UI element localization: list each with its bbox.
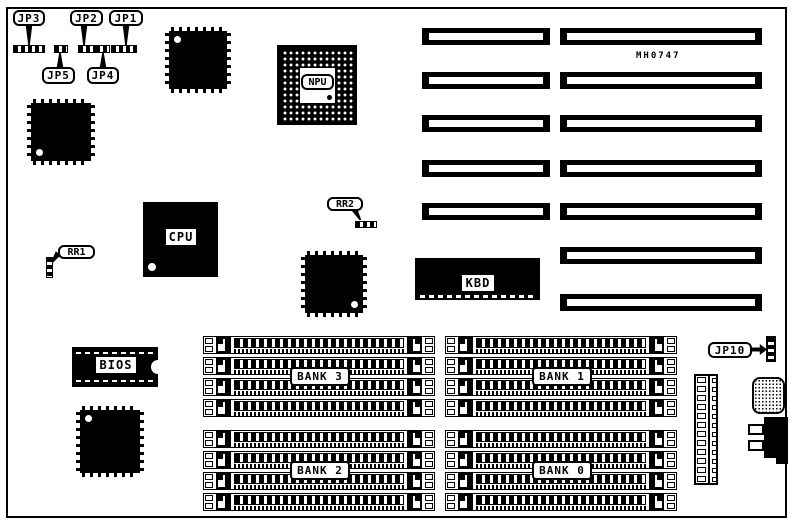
isa-slot-slit [429, 120, 543, 127]
qfp-pin1-dot [351, 301, 358, 308]
simm-latch-left [216, 473, 231, 489]
simm-contact-strip [234, 495, 404, 505]
simm-end-cell [447, 461, 455, 467]
qfp-pins-right [363, 257, 367, 311]
simm-end-cell [205, 482, 213, 488]
simm-end-cell [205, 359, 213, 365]
simm-end-cell [667, 432, 675, 438]
cpu-chip-label: CPU [166, 229, 196, 245]
power-pin [697, 476, 706, 482]
isa-slot-slit [567, 120, 755, 127]
simm-end-cell [205, 495, 213, 501]
bank-label-0: BANK 3 [290, 367, 350, 386]
simm-end-cell [425, 380, 433, 386]
power-pin-small [712, 378, 717, 383]
simm-end-cell [447, 388, 455, 394]
power-pin-small [712, 459, 717, 464]
simm-pin-ticks [476, 443, 646, 447]
simm-end-cell [425, 367, 433, 373]
simm-end-cell [447, 453, 455, 459]
simm-pin-ticks [476, 412, 646, 416]
power-pin-small [712, 450, 717, 455]
qfp-pins-right [227, 33, 231, 87]
power-pin-small [712, 387, 717, 392]
qfp-pin1-dot [85, 415, 92, 422]
power-pin-small [712, 432, 717, 437]
simm-contact-strip [476, 338, 646, 348]
simm-end-cell [205, 453, 213, 459]
simm-latch-right [649, 452, 664, 468]
isa-slot-col0-row0 [422, 28, 550, 45]
qfp-pin1-dot [36, 149, 43, 156]
bios-pin-row-bottom [76, 380, 154, 382]
isa-slot-slit [567, 33, 755, 40]
isa-slot-col0-row4 [422, 203, 550, 220]
power-pin [697, 431, 706, 437]
simm-latch-left [216, 494, 231, 510]
bank-label-1: BANK 1 [532, 367, 592, 386]
simm-end-cell [667, 367, 675, 373]
jumper-block-jp3 [13, 45, 45, 53]
simm-latch-right [407, 337, 422, 353]
simm-end-cell [205, 401, 213, 407]
simm-contact-strip [476, 401, 646, 411]
din-connector [764, 417, 788, 458]
simm-end-cell [425, 409, 433, 415]
isa-slot-col1-row3 [560, 160, 762, 177]
simm-pin-ticks [234, 349, 404, 353]
simm-latch-right [649, 400, 664, 416]
simm-latch-left [216, 379, 231, 395]
jumper-label-jp3: JP3 [13, 10, 45, 26]
din-connector-base [776, 456, 788, 464]
simm-end-cell [667, 380, 675, 386]
simm-contact-strip [234, 432, 404, 442]
simm-latch-right [649, 337, 664, 353]
simm-end-cell [667, 503, 675, 509]
kbd-chip-label: KBD [462, 275, 494, 291]
simm-pin-ticks [234, 485, 404, 489]
isa-slot-col1-row2 [560, 115, 762, 132]
isa-slot-slit [429, 77, 543, 84]
simm-latch-left [216, 358, 231, 374]
simm-end-cell [425, 346, 433, 352]
simm-end-cell [667, 482, 675, 488]
simm-pin-ticks [234, 443, 404, 447]
simm-end-cell [447, 440, 455, 446]
simm-end-cell [425, 461, 433, 467]
simm-end-cell [205, 409, 213, 415]
simm-end-cell [205, 474, 213, 480]
jumper-block-jp5 [54, 45, 68, 53]
simm-end-cell [447, 432, 455, 438]
jumper-label-jp1: JP1 [109, 10, 143, 26]
isa-slot-slit [567, 208, 755, 215]
power-pin [697, 422, 706, 428]
bios-notch [151, 360, 158, 374]
jumper-label-jp2: JP2 [70, 10, 103, 26]
simm-end-cell [447, 338, 455, 344]
bank-label-2: BANK 2 [290, 461, 350, 480]
isa-slot-col1-row0 [560, 28, 762, 45]
isa-slot-slit [567, 299, 755, 306]
simm-end-cell [425, 401, 433, 407]
simm-end-cell [667, 474, 675, 480]
simm-end-cell [425, 359, 433, 365]
simm-end-cell [667, 453, 675, 459]
simm-pin-ticks [234, 412, 404, 416]
simm-end-cell [447, 401, 455, 407]
bank-label-3: BANK 0 [532, 461, 592, 480]
simm-latch-right [407, 473, 422, 489]
simm-end-cell [447, 474, 455, 480]
power-pin [697, 377, 706, 383]
simm-end-cell [447, 380, 455, 386]
qfp-pins-bottom [171, 89, 225, 93]
din-connector-tab-top [748, 424, 764, 435]
simm-end-cell [425, 495, 433, 501]
simm-end-cell [667, 388, 675, 394]
simm-end-cell [667, 401, 675, 407]
simm-contact-strip [476, 495, 646, 505]
power-pin-small [712, 468, 717, 473]
simm-pin-ticks [476, 485, 646, 489]
simm-end-cell [205, 461, 213, 467]
power-pin [697, 467, 706, 473]
simm-latch-left [458, 431, 473, 447]
isa-slot-slit [567, 165, 755, 172]
simm-contact-strip [476, 432, 646, 442]
simm-pin-ticks [476, 391, 646, 395]
simm-latch-right [407, 400, 422, 416]
simm-latch-left [458, 400, 473, 416]
jumper-label-jp10: JP10 [708, 342, 752, 358]
power-pin [697, 404, 706, 410]
power-pin-small [712, 441, 717, 446]
simm-latch-left [458, 452, 473, 468]
simm-latch-left [458, 379, 473, 395]
simm-latch-left [216, 400, 231, 416]
simm-latch-right [649, 431, 664, 447]
simm-latch-right [649, 494, 664, 510]
simm-latch-left [216, 337, 231, 353]
power-pin [697, 449, 706, 455]
simm-end-cell [205, 380, 213, 386]
jumper-block-jp1 [111, 45, 137, 53]
simm-latch-right [649, 473, 664, 489]
power-pin [697, 386, 706, 392]
isa-slot-slit [567, 77, 755, 84]
simm-end-cell [425, 432, 433, 438]
simm-end-cell [205, 338, 213, 344]
simm-end-cell [425, 453, 433, 459]
simm-contact-strip [234, 401, 404, 411]
power-pin [697, 413, 706, 419]
power-pin [697, 458, 706, 464]
kbd-pin-row [420, 295, 535, 298]
isa-slot-slit [429, 33, 543, 40]
resistor-pack-rr2 [355, 221, 377, 228]
simm-latch-right [407, 379, 422, 395]
simm-end-cell [447, 359, 455, 365]
power-pin-small [712, 396, 717, 401]
npu-chip-label: NPU [301, 74, 334, 90]
simm-end-cell [667, 495, 675, 501]
qfp-pins-bottom [33, 161, 89, 165]
resistor-pack-rr1 [46, 257, 53, 278]
power-pin [697, 440, 706, 446]
power-pin-small [712, 477, 717, 482]
isa-slot-col0-row2 [422, 115, 550, 132]
simm-latch-left [458, 337, 473, 353]
isa-slot-slit [567, 252, 755, 259]
jumper-block-jp2 [78, 45, 95, 53]
power-connector-divider [708, 376, 710, 483]
simm-end-cell [425, 338, 433, 344]
cpu-pin1-dot [148, 263, 156, 271]
isa-slot-col1-row5 [560, 247, 762, 264]
simm-latch-left [458, 473, 473, 489]
simm-end-cell [425, 482, 433, 488]
simm-latch-right [407, 494, 422, 510]
simm-end-cell [205, 503, 213, 509]
simm-end-cell [667, 409, 675, 415]
simm-end-cell [447, 482, 455, 488]
simm-end-cell [205, 346, 213, 352]
jumper-label-jp4: JP4 [87, 67, 119, 84]
simm-end-cell [667, 338, 675, 344]
bios-chip-label: BIOS [96, 357, 136, 373]
jumper-block-jp10 [766, 336, 776, 362]
isa-slot-slit [429, 208, 543, 215]
simm-end-cell [205, 388, 213, 394]
qfp-pins-right [91, 105, 95, 159]
isa-slot-col1-row1 [560, 72, 762, 89]
npu-pin1-dot [327, 95, 332, 100]
simm-end-cell [425, 474, 433, 480]
bios-pin-row-top [76, 352, 154, 354]
simm-end-cell [667, 440, 675, 446]
simm-pin-ticks [476, 506, 646, 510]
qfp-pin1-dot [174, 36, 181, 43]
simm-end-cell [205, 432, 213, 438]
simm-latch-left [216, 431, 231, 447]
simm-end-cell [447, 367, 455, 373]
simm-end-cell [205, 440, 213, 446]
simm-end-cell [425, 440, 433, 446]
simm-latch-right [407, 452, 422, 468]
simm-latch-right [649, 358, 664, 374]
qfp-pins-bottom [307, 313, 361, 317]
simm-latch-left [216, 452, 231, 468]
simm-pin-ticks [234, 391, 404, 395]
isa-slot-slit [429, 165, 543, 172]
simm-latch-left [458, 494, 473, 510]
power-pin-small [712, 405, 717, 410]
board-part-number: MH0747 [636, 51, 690, 63]
power-pin-small [712, 414, 717, 419]
simm-pin-ticks [476, 349, 646, 353]
simm-end-cell [667, 359, 675, 365]
simm-end-cell [447, 503, 455, 509]
qfp-pins-bottom [82, 473, 138, 477]
jumper-label-jp5: JP5 [42, 67, 75, 84]
simm-latch-right [649, 379, 664, 395]
simm-latch-right [407, 358, 422, 374]
power-pin [697, 395, 706, 401]
simm-latch-left [458, 358, 473, 374]
simm-contact-strip [234, 338, 404, 348]
simm-pin-ticks [234, 506, 404, 510]
simm-latch-right [407, 431, 422, 447]
isa-slot-col1-row4 [560, 203, 762, 220]
simm-end-cell [205, 367, 213, 373]
qfp-pins-right [140, 412, 144, 471]
simm-end-cell [667, 461, 675, 467]
motherboard-diagram: JP3 JP2 JP1 JP5 JP4 NPU CPU RR1 RR2 KBD … [0, 0, 791, 527]
isa-slot-col0-row1 [422, 72, 550, 89]
simm-end-cell [425, 503, 433, 509]
din-connector-tab-bottom [748, 440, 764, 451]
power-pin-small [712, 423, 717, 428]
simm-end-cell [667, 346, 675, 352]
simm-end-cell [447, 495, 455, 501]
jumper-block-jp4 [95, 45, 110, 53]
resistor-pack-label-rr2: RR2 [327, 197, 363, 211]
simm-end-cell [447, 346, 455, 352]
simm-end-cell [425, 388, 433, 394]
isa-slot-col1-row6 [560, 294, 762, 311]
simm-end-cell [447, 409, 455, 415]
resistor-pack-label-rr1: RR1 [58, 245, 95, 259]
isa-slot-col0-row3 [422, 160, 550, 177]
keyboard-connector-pad [752, 377, 785, 414]
